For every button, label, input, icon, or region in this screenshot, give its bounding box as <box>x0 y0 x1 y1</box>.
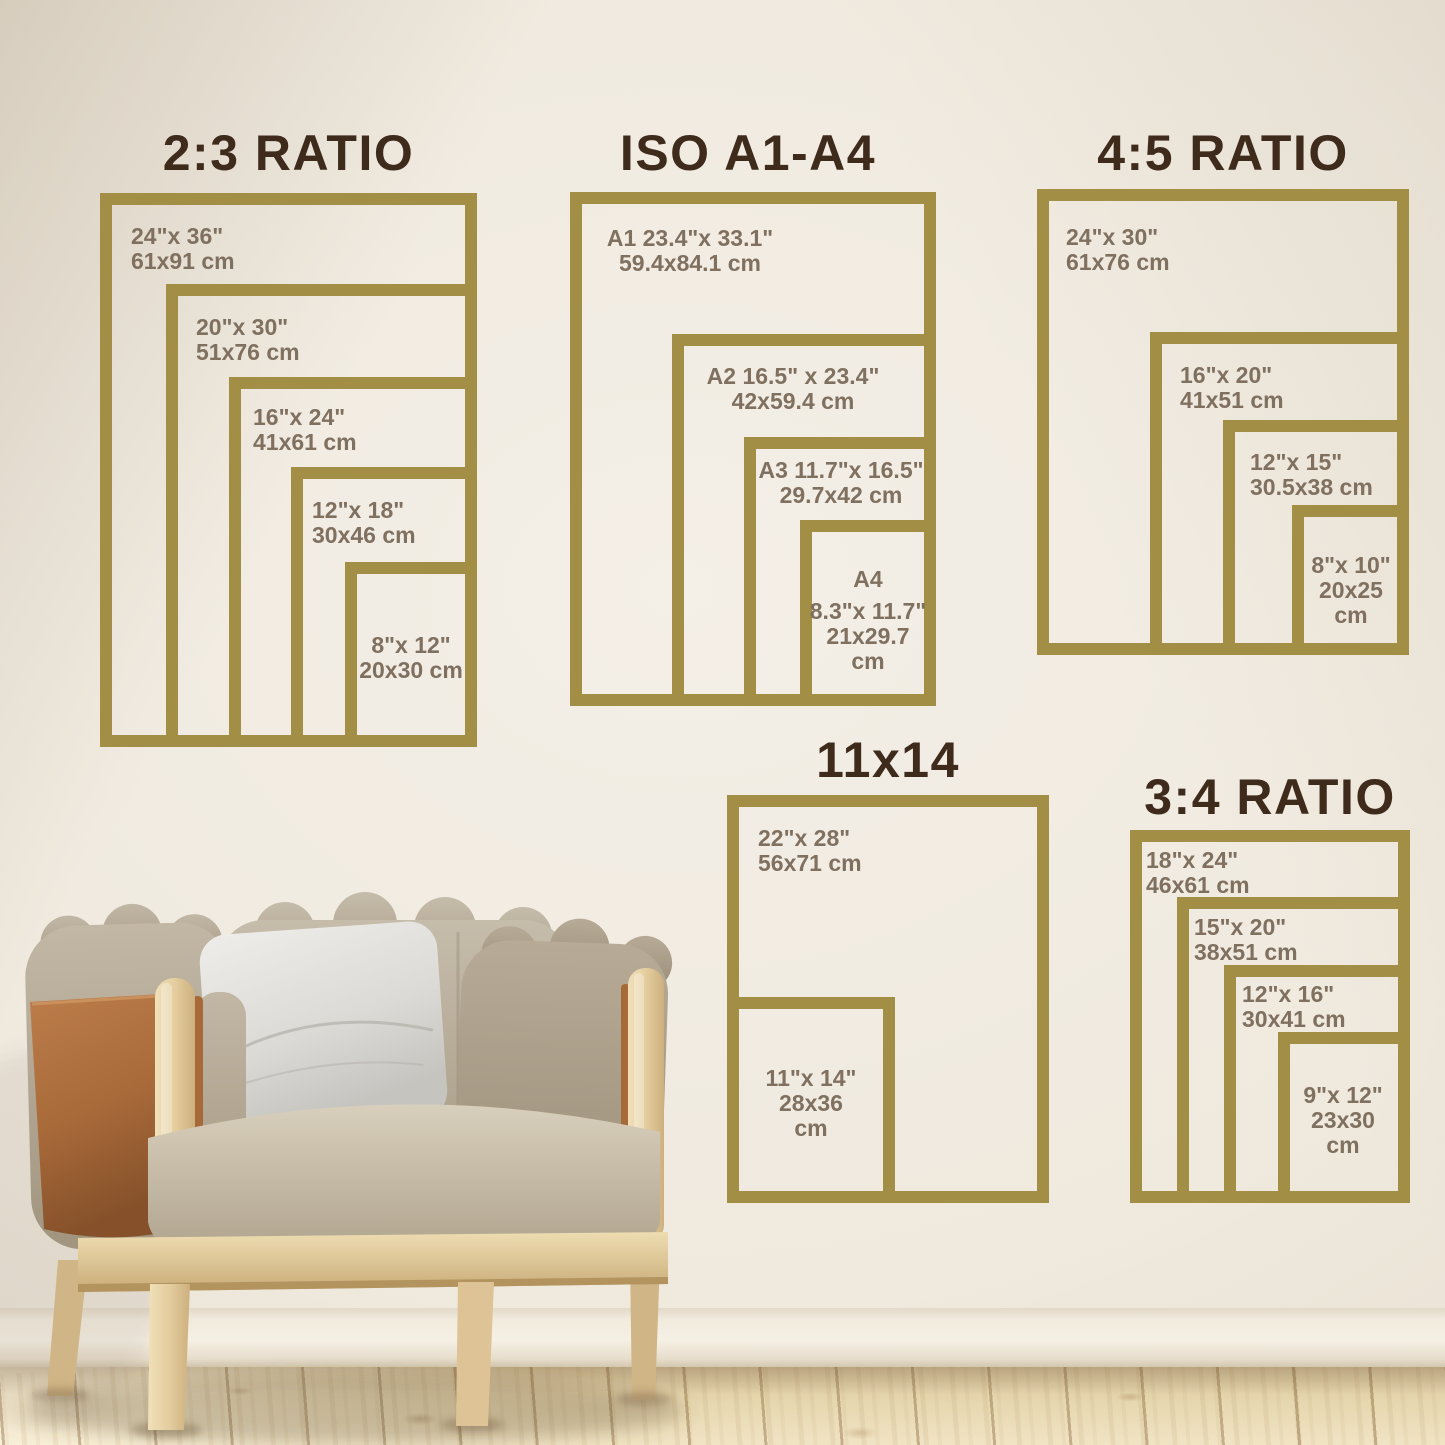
size-label-8x10: 8"x 10" 20x25 cm <box>1311 553 1390 628</box>
size-label-a4: A4 8.3"x 11.7" 21x29.7 cm <box>810 567 926 674</box>
size-label-15x20: 15"x 20" 38x51 cm <box>1194 915 1298 965</box>
size-label-18x24: 18"x 24" 46x61 cm <box>1146 848 1250 898</box>
chair-floor-shadow <box>25 1376 685 1444</box>
section-title: 4:5 RATIO <box>1037 128 1409 178</box>
section-title: ISO A1-A4 <box>560 128 936 178</box>
size-label-9x12: 9"x 12" 23x30 cm <box>1303 1083 1382 1158</box>
armchair <box>0 880 700 1445</box>
chair-leg-front-left <box>148 1284 190 1430</box>
leather-side-panel <box>30 994 167 1237</box>
size-label-a2: A2 16.5" x 23.4" 42x59.4 cm <box>707 364 880 414</box>
size-label-16x20: 16"x 20" 41x51 cm <box>1180 363 1284 413</box>
size-label-12x16: 12"x 16" 30x41 cm <box>1242 982 1346 1032</box>
size-label-24x36: 24"x 36" 61x91 cm <box>131 224 235 274</box>
size-label-a3: A3 11.7"x 16.5" 29.7x42 cm <box>758 458 923 508</box>
size-label-11x14: 11"x 14" 28x36 cm <box>766 1066 857 1141</box>
size-label-20x30: 20"x 30" 51x76 cm <box>196 315 300 365</box>
leg-shadow <box>30 1388 90 1402</box>
size-label-a1: A1 23.4"x 33.1" 59.4x84.1 cm <box>607 226 773 276</box>
size-label-24x30: 24"x 30" 61x76 cm <box>1066 225 1170 275</box>
size-label-12x15: 12"x 15" 30.5x38 cm <box>1250 450 1373 500</box>
leg-shadow <box>616 1392 672 1406</box>
seat-cushion <box>148 1104 660 1252</box>
section-title: 11x14 <box>727 735 1049 785</box>
size-label-16x24: 16"x 24" 41x61 cm <box>253 405 357 455</box>
section-title: 3:4 RATIO <box>1130 772 1410 822</box>
chair-leg-front-right <box>456 1282 494 1426</box>
size-label-12x18: 12"x 18" 30x46 cm <box>312 498 416 548</box>
section-title: 2:3 RATIO <box>100 128 477 178</box>
size-label-22x28: 22"x 28" 56x71 cm <box>758 826 862 876</box>
size-label-8x12: 8"x 12" 20x30 cm <box>359 633 463 683</box>
